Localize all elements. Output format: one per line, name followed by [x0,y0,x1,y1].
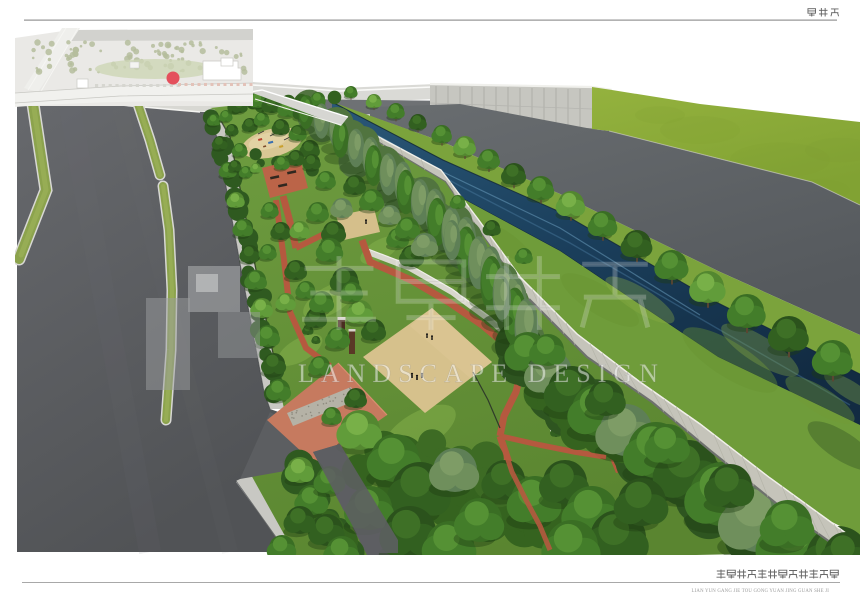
svg-text:LIAN YUN GANG JIE TOU GONG YUA: LIAN YUN GANG JIE TOU GONG YUAN JING GUA… [691,589,829,594]
svg-text:LANDSCAPE DESIGN: LANDSCAPE DESIGN [298,359,665,388]
